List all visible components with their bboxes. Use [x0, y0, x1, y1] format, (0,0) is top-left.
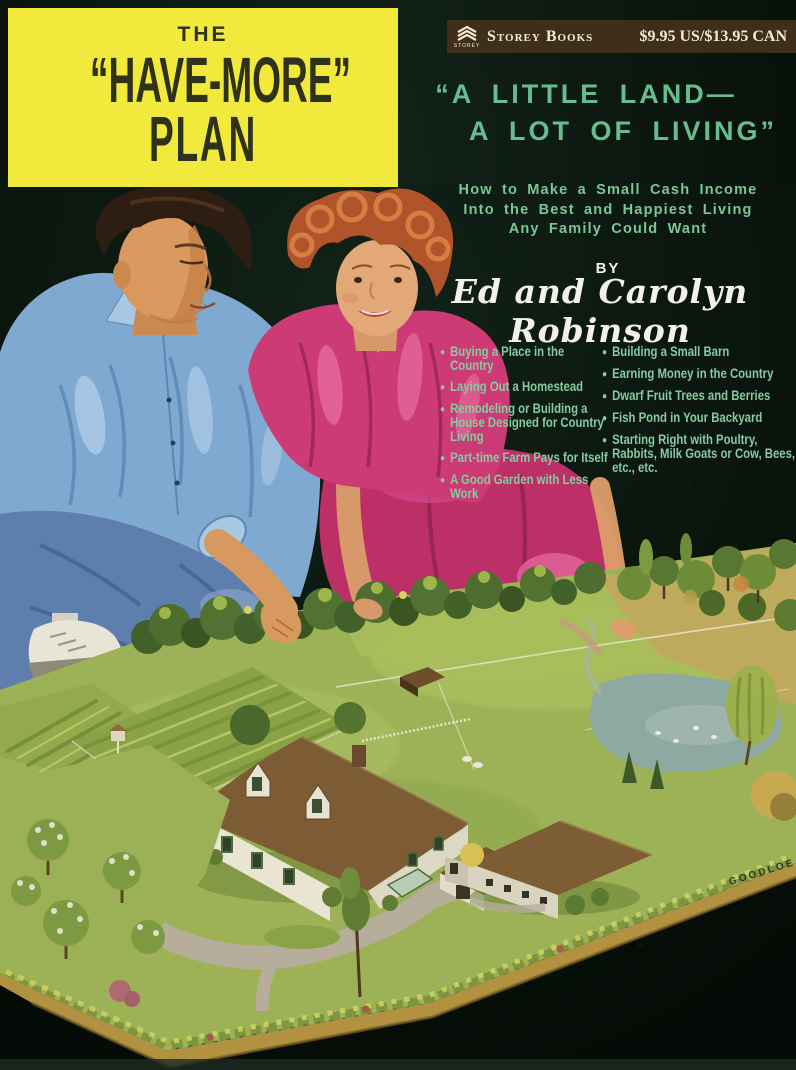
bullet-icon: ● [602, 434, 607, 475]
topic-label: Dwarf Fruit Trees and Berries [612, 389, 770, 404]
topic-item: ● Fish Pond in Your Backyard [602, 411, 796, 426]
topic-item: ● Earning Money in the Country [602, 367, 796, 382]
topic-item: ● Remodeling or Building a House Designe… [440, 402, 608, 444]
price-label: $9.95 US/$13.95 CAN [639, 28, 787, 46]
subtitle: How to Make a Small Cash Income Into the… [420, 181, 796, 240]
bullet-icon: ● [440, 403, 445, 444]
book-cover: GOODLOE THE “HAVE-MORE” PLAN STOREY [0, 0, 796, 1070]
topic-label: Laying Out a Homestead [450, 380, 583, 395]
storey-logo-icon: STOREY [452, 25, 482, 49]
bullet-icon: ● [602, 368, 607, 382]
topic-item: ● Part-time Farm Pays for Itself [440, 451, 608, 466]
headline-line2: A LOT OF LIVING” [450, 113, 796, 150]
headline: “A LITTLE LAND— A LOT OF LIVING” [420, 76, 796, 150]
storey-logo-caption: STOREY [454, 44, 480, 49]
bullet-icon: ● [440, 452, 445, 466]
topic-label: Building a Small Barn [612, 345, 729, 360]
bullet-icon: ● [602, 412, 607, 426]
topic-label: Buying a Place in the Country [450, 345, 608, 373]
title-box: THE “HAVE-MORE” PLAN [8, 8, 398, 187]
topic-item: ● Laying Out a Homestead [440, 380, 608, 395]
bullet-icon: ● [602, 346, 607, 360]
bullet-icon: ● [440, 381, 445, 395]
topic-label: Starting Right with Poultry, Rabbits, Mi… [612, 433, 796, 475]
topic-item: ● Building a Small Barn [602, 345, 796, 360]
topic-item: ● A Good Garden with Less Work [440, 473, 608, 501]
bullet-icon: ● [440, 474, 445, 501]
topic-label: Part-time Farm Pays for Itself [450, 451, 608, 466]
subtitle-line3: Any Family Could Want [420, 220, 796, 240]
title-the: THE [8, 8, 398, 47]
subtitle-line2: Into the Best and Happiest Living [420, 201, 796, 221]
topic-item: ● Starting Right with Poultry, Rabbits, … [602, 433, 796, 475]
bullet-icon: ● [440, 346, 445, 373]
topic-label: Earning Money in the Country [612, 367, 773, 382]
bullet-icon: ● [602, 390, 607, 404]
title-plan: PLAN [90, 111, 316, 167]
topic-label: A Good Garden with Less Work [450, 473, 608, 501]
title-have-more: “HAVE-MORE” [90, 49, 316, 111]
publisher-name: Storey Books [487, 28, 593, 46]
publisher-bar: STOREY Storey Books $9.95 US/$13.95 CAN [447, 20, 796, 53]
subtitle-line1: How to Make a Small Cash Income [420, 181, 796, 201]
topics-column-left: ● Buying a Place in the Country ● Laying… [440, 345, 608, 508]
topic-label: Fish Pond in Your Backyard [612, 411, 762, 426]
topics-column-right: ● Building a Small Barn ● Earning Money … [602, 345, 796, 482]
author-names: Ed and Carolyn Robinson [404, 272, 796, 350]
topic-item: ● Dwarf Fruit Trees and Berries [602, 389, 796, 404]
topic-label: Remodeling or Building a House Designed … [450, 402, 608, 444]
headline-line1: “A LITTLE LAND— [420, 76, 752, 113]
topic-item: ● Buying a Place in the Country [440, 345, 608, 373]
